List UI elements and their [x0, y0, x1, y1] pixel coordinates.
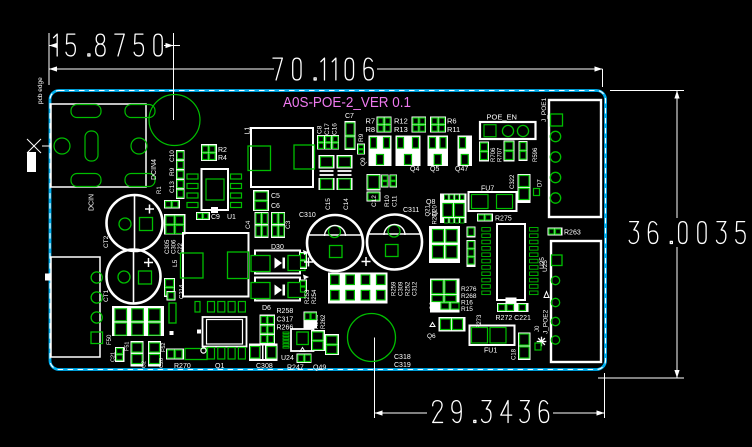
- svg-text:L1: L1: [245, 127, 252, 135]
- svg-text:R254: R254: [312, 289, 318, 304]
- svg-text:C310: C310: [299, 212, 316, 219]
- svg-text:R263: R263: [564, 230, 581, 237]
- svg-text:D7: D7: [538, 179, 544, 187]
- svg-text:C17: C17: [324, 123, 331, 135]
- svg-text:R10: R10: [384, 195, 391, 207]
- svg-text:R11: R11: [447, 125, 460, 134]
- svg-text:U25: U25: [539, 257, 546, 269]
- svg-text:C305: C305: [165, 239, 171, 254]
- svg-text:R13: R13: [394, 125, 408, 134]
- svg-text:R9: R9: [169, 167, 176, 176]
- svg-text:U24: U24: [281, 355, 294, 362]
- svg-text:R2: R2: [218, 147, 227, 154]
- svg-text:C2: C2: [142, 361, 148, 368]
- svg-text:R247: R247: [287, 365, 304, 372]
- svg-text:Q6: Q6: [430, 301, 436, 310]
- svg-text:C6: C6: [271, 203, 280, 210]
- svg-text:C3: C3: [285, 220, 292, 229]
- svg-text:DCIN4: DCIN4: [151, 159, 158, 180]
- svg-text:Q1: Q1: [215, 363, 224, 370]
- svg-text:R15: R15: [461, 306, 473, 313]
- svg-text:R707: R707: [498, 147, 504, 162]
- svg-text:C18: C18: [512, 348, 518, 360]
- svg-text:C309: C309: [399, 281, 405, 296]
- svg-text:J_POE2: J_POE2: [543, 309, 550, 334]
- svg-text:J0: J0: [535, 325, 541, 332]
- svg-text:Q6: Q6: [427, 333, 436, 340]
- svg-text:C306: C306: [172, 239, 178, 254]
- svg-text:C14: C14: [343, 198, 350, 210]
- svg-text:C10: C10: [169, 150, 176, 162]
- svg-text:Q47: Q47: [455, 166, 468, 173]
- svg-text:C311: C311: [403, 207, 419, 214]
- svg-text:CT2: CT2: [103, 235, 110, 248]
- svg-text:R9: R9: [358, 133, 365, 142]
- svg-text:C21: C21: [111, 352, 117, 362]
- svg-text:C7: C7: [345, 113, 354, 120]
- svg-text:R706: R706: [491, 147, 497, 162]
- svg-text:C9: C9: [211, 214, 220, 221]
- svg-text:R270: R270: [174, 363, 191, 370]
- svg-text:Q8: Q8: [426, 199, 435, 206]
- svg-text:R1: R1: [157, 186, 163, 194]
- svg-text:R253: R253: [305, 289, 311, 304]
- svg-text:Q4: Q4: [410, 166, 419, 173]
- svg-text:C322: C322: [510, 174, 516, 189]
- svg-text:FU1: FU1: [484, 348, 497, 355]
- svg-text:R259: R259: [392, 281, 398, 296]
- svg-text:C8: C8: [317, 125, 324, 134]
- svg-text:C4: C4: [245, 220, 252, 229]
- svg-text:C13: C13: [169, 181, 176, 193]
- svg-text:R262: R262: [321, 314, 327, 329]
- svg-text:R596: R596: [533, 147, 539, 162]
- svg-text:C308: C308: [256, 363, 273, 370]
- svg-text:R258: R258: [277, 308, 294, 315]
- svg-text:Q5: Q5: [430, 166, 439, 173]
- svg-text:C11: C11: [392, 195, 399, 207]
- svg-text:C318: C318: [394, 354, 411, 361]
- svg-text:J_POE1: J_POE1: [541, 97, 548, 122]
- svg-text:pcb edge: pcb edge: [37, 77, 44, 104]
- svg-text:C12: C12: [371, 195, 378, 207]
- svg-text:C312: C312: [413, 281, 419, 296]
- svg-text:C16: C16: [332, 123, 339, 135]
- svg-text:Q9: Q9: [360, 157, 367, 166]
- svg-text:C317: C317: [277, 317, 294, 324]
- svg-text:R252: R252: [406, 281, 412, 296]
- svg-text:L5: L5: [172, 259, 179, 267]
- svg-text:DCIN: DCIN: [89, 194, 96, 211]
- svg-text:POE_EN: POE_EN: [487, 113, 517, 122]
- svg-text:Q49: Q49: [313, 365, 326, 372]
- svg-text:C5: C5: [271, 193, 280, 200]
- svg-text:A0S-POE-2_VER 0.1: A0S-POE-2_VER 0.1: [283, 95, 411, 111]
- svg-text:R4: R4: [218, 155, 227, 162]
- svg-text:D6: D6: [262, 305, 271, 312]
- svg-text:R281: R281: [433, 209, 439, 224]
- svg-text:F51: F51: [125, 342, 131, 351]
- svg-text:U1: U1: [227, 214, 236, 221]
- svg-text:C319: C319: [394, 362, 411, 369]
- svg-text:R275: R275: [495, 216, 512, 223]
- svg-text:C20: C20: [159, 358, 165, 368]
- svg-text:R273: R273: [477, 314, 483, 329]
- svg-text:C15: C15: [325, 198, 332, 210]
- svg-text:CT1: CT1: [103, 289, 110, 302]
- svg-text:R276: R276: [461, 286, 477, 293]
- svg-text:R272 C221: R272 C221: [496, 315, 532, 322]
- svg-text:Q21: Q21: [426, 204, 432, 216]
- svg-text:R8: R8: [366, 125, 376, 134]
- svg-text:F50: F50: [107, 334, 113, 345]
